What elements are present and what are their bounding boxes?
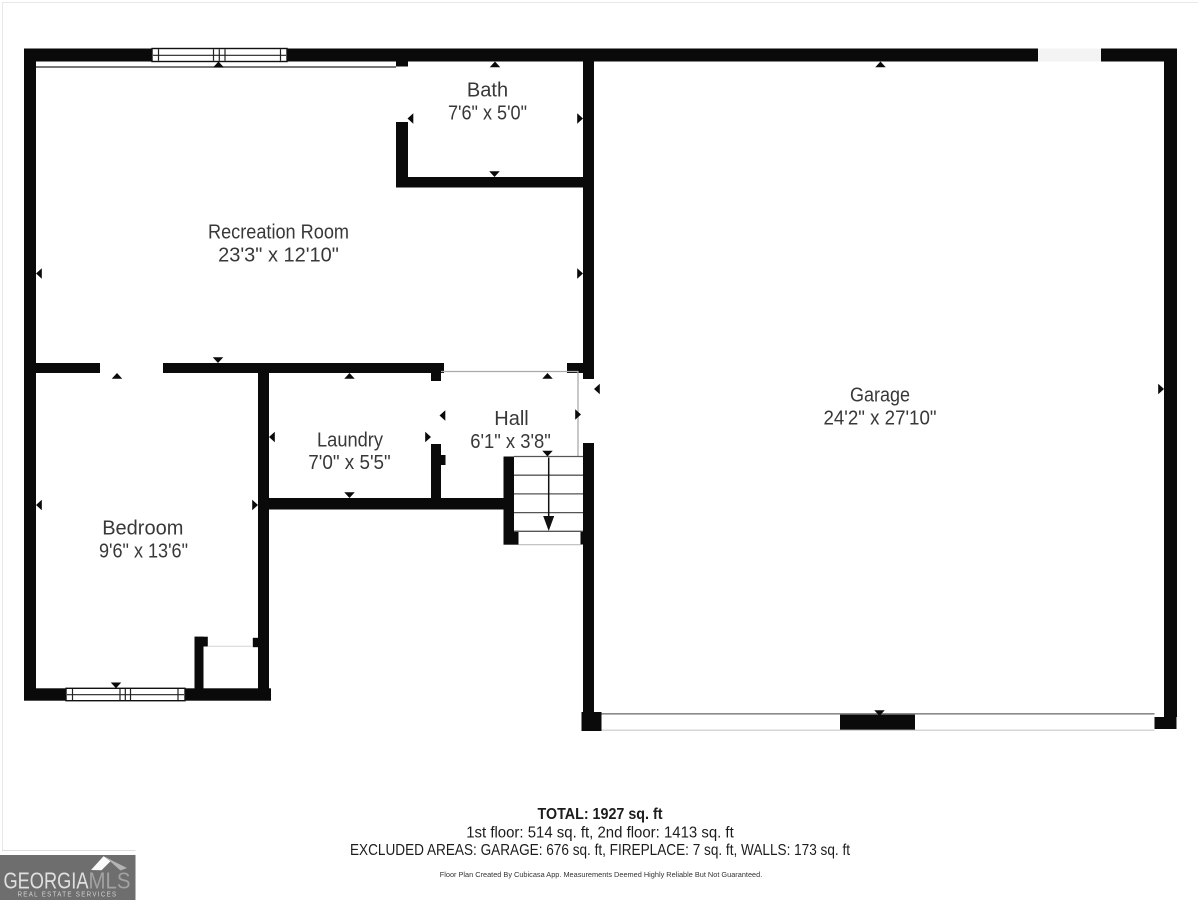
svg-text:Floor Plan Created By Cubicasa: Floor Plan Created By Cubicasa App. Meas… bbox=[440, 870, 763, 879]
svg-text:Bath: Bath bbox=[467, 80, 508, 102]
svg-text:24'2" x 27'10": 24'2" x 27'10" bbox=[824, 408, 937, 430]
svg-text:7'0" x 5'5": 7'0" x 5'5" bbox=[308, 452, 391, 474]
svg-text:Recreation Room: Recreation Room bbox=[208, 222, 349, 244]
svg-text:EXCLUDED AREAS: GARAGE: 676 sq: EXCLUDED AREAS: GARAGE: 676 sq. ft, FIRE… bbox=[350, 842, 851, 859]
svg-text:Bedroom: Bedroom bbox=[102, 518, 183, 540]
svg-text:9'6" x 13'6": 9'6" x 13'6" bbox=[99, 541, 188, 563]
svg-text:Hall: Hall bbox=[494, 408, 528, 430]
svg-text:Laundry: Laundry bbox=[317, 430, 383, 452]
svg-text:1st floor: 514 sq. ft, 2nd flo: 1st floor: 514 sq. ft, 2nd floor: 1413 s… bbox=[466, 825, 734, 842]
svg-text:6'1" x 3'8": 6'1" x 3'8" bbox=[470, 431, 551, 453]
svg-text:Garage: Garage bbox=[850, 385, 910, 407]
svg-text:23'3" x 12'10": 23'3" x 12'10" bbox=[218, 245, 339, 267]
svg-text:7'6" x 5'0": 7'6" x 5'0" bbox=[448, 103, 527, 125]
svg-text:REAL ESTATE SERVICES: REAL ESTATE SERVICES bbox=[18, 890, 118, 899]
svg-text:TOTAL: 1927 sq. ft: TOTAL: 1927 sq. ft bbox=[538, 806, 663, 823]
